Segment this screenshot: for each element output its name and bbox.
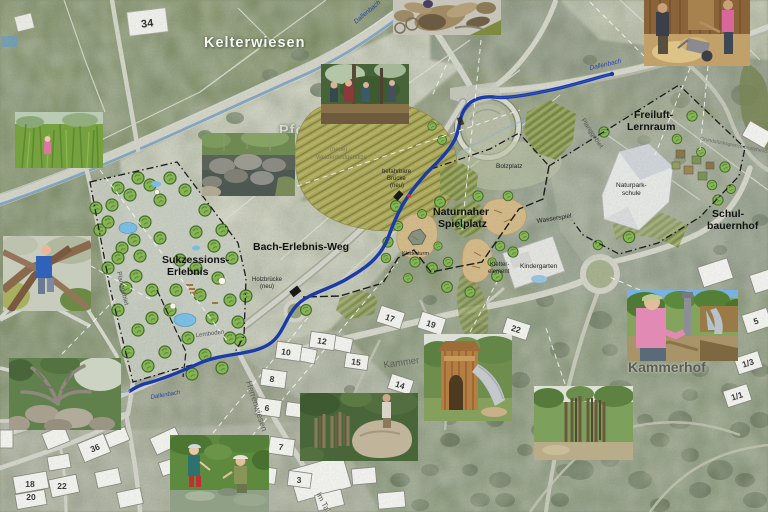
svg-text:Brücke: Brücke [387, 176, 406, 182]
svg-text:(neu): (neu) [260, 284, 274, 290]
svg-text:Spielplatz: Spielplatz [438, 218, 487, 230]
svg-text:Erlebnis: Erlebnis [167, 266, 209, 278]
svg-text:Bolzplatz: Bolzplatz [496, 163, 522, 170]
svg-text:Weidenfeldgehölze: Weidenfeldgehölze [316, 155, 368, 161]
svg-text:Sukzessions-: Sukzessions- [162, 254, 230, 266]
svg-text:Kindergarten: Kindergarten [520, 263, 558, 270]
svg-text:Schul-: Schul- [712, 208, 745, 220]
svg-text:Kletter-: Kletter- [490, 262, 509, 268]
svg-text:schule: schule [622, 190, 641, 197]
svg-text:Freiluft-: Freiluft- [634, 109, 674, 121]
svg-text:(neu): (neu) [390, 183, 404, 189]
svg-text:Kelterwiesen: Kelterwiesen [204, 35, 305, 51]
svg-text:Naturnaher: Naturnaher [433, 206, 489, 218]
svg-text:Bach-Erlebnis-Weg: Bach-Erlebnis-Weg [253, 241, 349, 253]
svg-text:Lernraum: Lernraum [627, 121, 675, 133]
svg-text:Naturpark-: Naturpark- [616, 182, 647, 189]
svg-text:Kammerhof: Kammerhof [628, 359, 706, 375]
svg-text:(neue): (neue) [330, 147, 347, 153]
svg-text:Holzbrücke: Holzbrücke [252, 277, 283, 283]
svg-text:element: element [488, 269, 510, 275]
svg-text:Kletterturm: Kletterturm [402, 251, 429, 257]
svg-text:befahrbare: befahrbare [382, 169, 412, 175]
svg-text:bauernhof: bauernhof [707, 220, 759, 232]
